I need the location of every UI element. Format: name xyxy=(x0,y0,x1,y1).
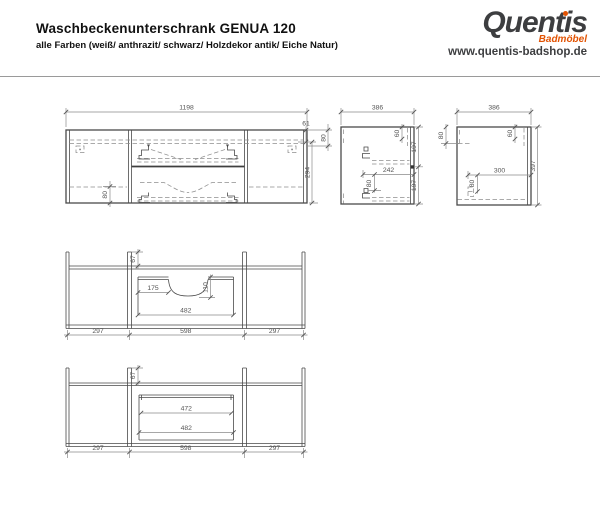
dim-sideright-hinge: 80 xyxy=(469,180,476,188)
dim-front-height: 294 xyxy=(305,167,312,179)
hinge-dot-right xyxy=(291,149,293,151)
dim-planbottom-middle: 598 xyxy=(180,445,192,452)
dim-front-plinth: 80 xyxy=(102,191,109,199)
dim-planbottom-inner: 472 xyxy=(181,406,193,413)
dim-sideleft-hinge: 80 xyxy=(366,180,373,188)
dim-plantop-cutout-offset: 175 xyxy=(147,285,159,292)
dim-sideleft-width: 386 xyxy=(372,105,384,112)
dim-planbottom-rail: 67 xyxy=(130,372,137,380)
bracket-arrow-right xyxy=(226,145,229,148)
dim-sideleft-upper: 197 xyxy=(411,141,418,153)
front-runner-brackets xyxy=(139,146,237,203)
side-right-dim-lines xyxy=(441,108,542,205)
dim-plantop-cutout-depth: 110 xyxy=(202,282,209,293)
plan-top-structure xyxy=(66,252,305,329)
side-right-dim-ticks xyxy=(444,110,540,207)
side-view-right: 386 80 60 300 80 397 xyxy=(438,105,542,208)
dim-planbottom-right: 297 xyxy=(269,445,281,452)
dim-sideleft-lower: 197 xyxy=(411,180,418,192)
side-right-hidden-lines xyxy=(458,128,528,200)
side-left-hidden-lines xyxy=(344,128,410,204)
dim-plantop-middle: 598 xyxy=(180,328,192,335)
front-dim-ticks xyxy=(64,110,330,205)
hinge-dot-left xyxy=(79,149,81,151)
side-left-dim-ticks xyxy=(339,110,421,206)
dim-sideleft-depth: 242 xyxy=(383,167,395,174)
dim-front-top-offset: 80 xyxy=(321,134,328,142)
dim-plantop-rail: 67 xyxy=(130,255,137,263)
front-view: 1198 61 80 294 80 xyxy=(64,105,332,208)
bracket-arrow-left xyxy=(147,145,150,148)
technical-drawing: 1198 61 80 294 80 386 60 242 80 197 197 xyxy=(0,0,600,516)
side-left-marker xyxy=(411,165,414,168)
dim-sideright-depth: 300 xyxy=(494,168,506,175)
plan-view-bottom: 67 472 482 297 598 297 xyxy=(64,365,308,458)
plan-bottom-drawer xyxy=(139,395,234,440)
side-view-left: 386 60 242 80 197 197 xyxy=(339,105,423,207)
plan-view-top: 67 175 110 482 297 598 297 xyxy=(64,249,308,340)
dim-sideright-top-right: 60 xyxy=(507,130,514,138)
dim-sideright-top-left: 80 xyxy=(438,132,445,140)
plan-top-dim-ticks xyxy=(65,250,305,337)
dim-sideright-height: 397 xyxy=(530,160,537,172)
dim-sideright-width: 386 xyxy=(488,105,500,112)
dim-planbottom-drawer: 482 xyxy=(181,425,193,432)
dim-front-top-edge: 61 xyxy=(302,121,310,128)
dim-planbottom-left: 297 xyxy=(92,445,104,452)
dim-plantop-left: 297 xyxy=(92,328,104,335)
dim-plantop-drawer: 482 xyxy=(180,308,192,315)
dim-front-width: 1198 xyxy=(179,105,194,112)
plan-top-dim-lines xyxy=(64,249,308,340)
dim-sideleft-top-right: 60 xyxy=(394,130,401,138)
catalog-drawing-page: Waschbeckenunterschrank GENUA 120 alle F… xyxy=(0,0,600,516)
dim-plantop-right: 297 xyxy=(269,328,281,335)
